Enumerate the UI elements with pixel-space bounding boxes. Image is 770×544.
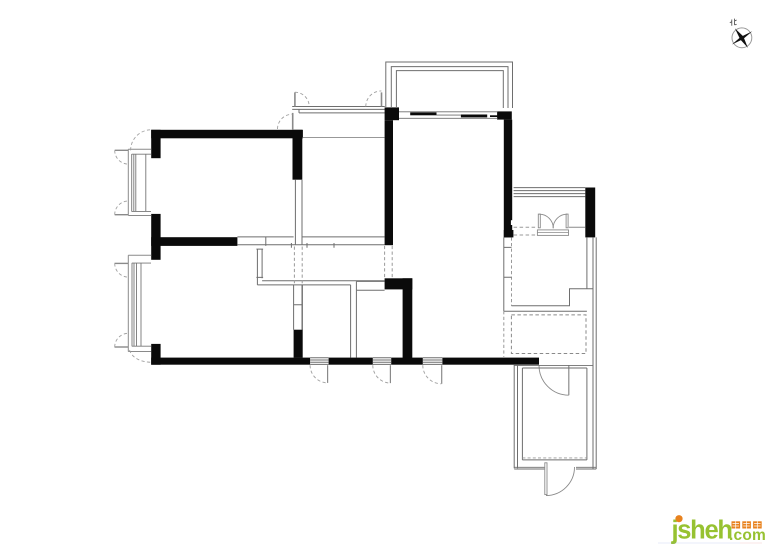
svg-text:.com: .com: [729, 527, 766, 544]
